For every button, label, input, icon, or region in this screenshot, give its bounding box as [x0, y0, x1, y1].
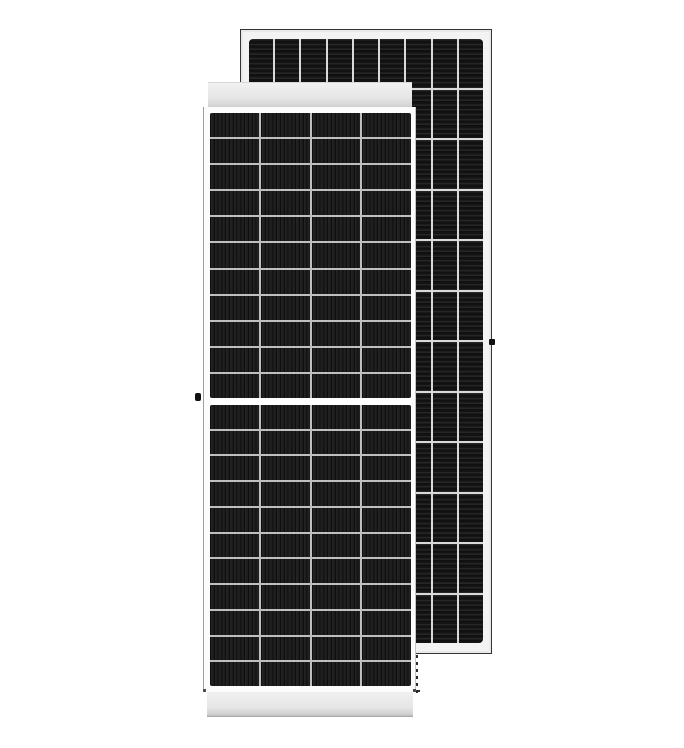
- solar-cell: [312, 191, 361, 215]
- solar-cell: [261, 637, 310, 661]
- solar-cell: [210, 431, 259, 455]
- solar-cell: [210, 139, 259, 163]
- solar-cell: [406, 39, 430, 88]
- solar-cell: [261, 113, 310, 137]
- solar-cell: [362, 611, 411, 635]
- solar-cell: [362, 296, 411, 320]
- solar-cell: [433, 191, 457, 240]
- solar-cell: [362, 405, 411, 429]
- solar-cell: [362, 322, 411, 346]
- solar-cell: [362, 637, 411, 661]
- solar-cell: [312, 270, 361, 294]
- solar-cell: [362, 508, 411, 532]
- solar-cell: [261, 296, 310, 320]
- solar-cell: [210, 191, 259, 215]
- solar-cell: [312, 637, 361, 661]
- solar-cell: [362, 191, 411, 215]
- solar-cell: [459, 292, 483, 341]
- solar-cell: [312, 508, 361, 532]
- solar-cell: [433, 443, 457, 492]
- solar-cell: [312, 662, 361, 686]
- solar-cell: [362, 270, 411, 294]
- solar-cell: [362, 585, 411, 609]
- solar-cell: [312, 534, 361, 558]
- solar-cell: [210, 662, 259, 686]
- solar-cell: [328, 39, 352, 88]
- solar-cell: [210, 508, 259, 532]
- solar-cell: [459, 393, 483, 442]
- solar-cell: [210, 456, 259, 480]
- solar-cell: [261, 559, 310, 583]
- solar-cell: [261, 374, 310, 398]
- solar-cell: [362, 243, 411, 267]
- solar-cell: [459, 595, 483, 644]
- solar-cell: [210, 611, 259, 635]
- solar-cell: [210, 374, 259, 398]
- solar-cell: [210, 165, 259, 189]
- solar-cell: [312, 585, 361, 609]
- solar-cell: [362, 431, 411, 455]
- solar-cell: [210, 534, 259, 558]
- solar-cell: [459, 544, 483, 593]
- solar-cell: [312, 165, 361, 189]
- solar-cell: [261, 456, 310, 480]
- solar-cell: [249, 39, 273, 88]
- solar-cell: [362, 374, 411, 398]
- solar-cell: [312, 405, 361, 429]
- solar-cell: [362, 482, 411, 506]
- solar-cell: [210, 217, 259, 241]
- solar-cell: [261, 322, 310, 346]
- front-panel-bottom-frame: [207, 692, 413, 717]
- solar-cell: [433, 90, 457, 139]
- solar-cell: [362, 165, 411, 189]
- solar-cell: [210, 270, 259, 294]
- solar-cell: [380, 39, 404, 88]
- solar-cell: [433, 393, 457, 442]
- solar-cell: [433, 342, 457, 391]
- solar-cell: [459, 443, 483, 492]
- solar-cell: [433, 544, 457, 593]
- front-panel-center-gap: [210, 398, 411, 405]
- solar-cell: [210, 559, 259, 583]
- solar-cell: [210, 405, 259, 429]
- solar-cell: [210, 113, 259, 137]
- solar-cell: [210, 348, 259, 372]
- solar-cell: [362, 348, 411, 372]
- solar-cell: [433, 241, 457, 290]
- solar-cell: [362, 456, 411, 480]
- solar-cell: [261, 191, 310, 215]
- solar-cell: [210, 585, 259, 609]
- front-panel-top-frame: [208, 82, 412, 108]
- solar-cell: [312, 611, 361, 635]
- solar-cell: [433, 494, 457, 543]
- solar-cell: [312, 113, 361, 137]
- solar-cell: [312, 456, 361, 480]
- solar-cell: [459, 191, 483, 240]
- solar-cell: [210, 296, 259, 320]
- solar-cell: [275, 39, 299, 88]
- front-panel-lower-cell-grid: [210, 405, 411, 686]
- solar-cell: [433, 140, 457, 189]
- solar-cell: [362, 559, 411, 583]
- solar-cell: [261, 611, 310, 635]
- solar-cell: [312, 296, 361, 320]
- solar-cell: [362, 139, 411, 163]
- solar-cell: [261, 431, 310, 455]
- solar-cell: [312, 559, 361, 583]
- rear-panel-grounding-lug: [489, 339, 495, 345]
- solar-cell: [433, 595, 457, 644]
- solar-panel-front-view: [203, 107, 416, 692]
- solar-cell: [210, 243, 259, 267]
- solar-cell: [459, 140, 483, 189]
- solar-cell: [433, 39, 457, 88]
- solar-cell: [362, 217, 411, 241]
- solar-cell: [312, 217, 361, 241]
- solar-cell: [362, 662, 411, 686]
- solar-cell: [210, 322, 259, 346]
- solar-cell: [312, 348, 361, 372]
- solar-panels-product-image: [0, 0, 684, 748]
- hidden-edge-dashes-vertical: [416, 655, 418, 695]
- solar-cell: [459, 494, 483, 543]
- solar-cell: [459, 90, 483, 139]
- solar-cell: [210, 482, 259, 506]
- solar-cell: [354, 39, 378, 88]
- solar-cell: [312, 243, 361, 267]
- solar-cell: [312, 139, 361, 163]
- front-panel-grounding-lug: [195, 393, 201, 401]
- solar-cell: [459, 342, 483, 391]
- solar-cell: [459, 39, 483, 88]
- solar-cell: [312, 482, 361, 506]
- solar-cell: [261, 243, 310, 267]
- solar-cell: [261, 405, 310, 429]
- solar-cell: [433, 292, 457, 341]
- solar-cell: [459, 241, 483, 290]
- solar-cell: [261, 662, 310, 686]
- solar-cell: [261, 482, 310, 506]
- solar-cell: [261, 534, 310, 558]
- solar-cell: [362, 113, 411, 137]
- solar-cell: [261, 348, 310, 372]
- solar-cell: [301, 39, 325, 88]
- solar-cell: [261, 217, 310, 241]
- front-panel-upper-cell-grid: [210, 113, 411, 398]
- solar-cell: [261, 508, 310, 532]
- solar-cell: [261, 165, 310, 189]
- solar-cell: [312, 431, 361, 455]
- solar-cell: [312, 322, 361, 346]
- solar-cell: [261, 585, 310, 609]
- solar-cell: [210, 637, 259, 661]
- solar-cell: [312, 374, 361, 398]
- solar-cell: [362, 534, 411, 558]
- solar-cell: [261, 139, 310, 163]
- solar-cell: [261, 270, 310, 294]
